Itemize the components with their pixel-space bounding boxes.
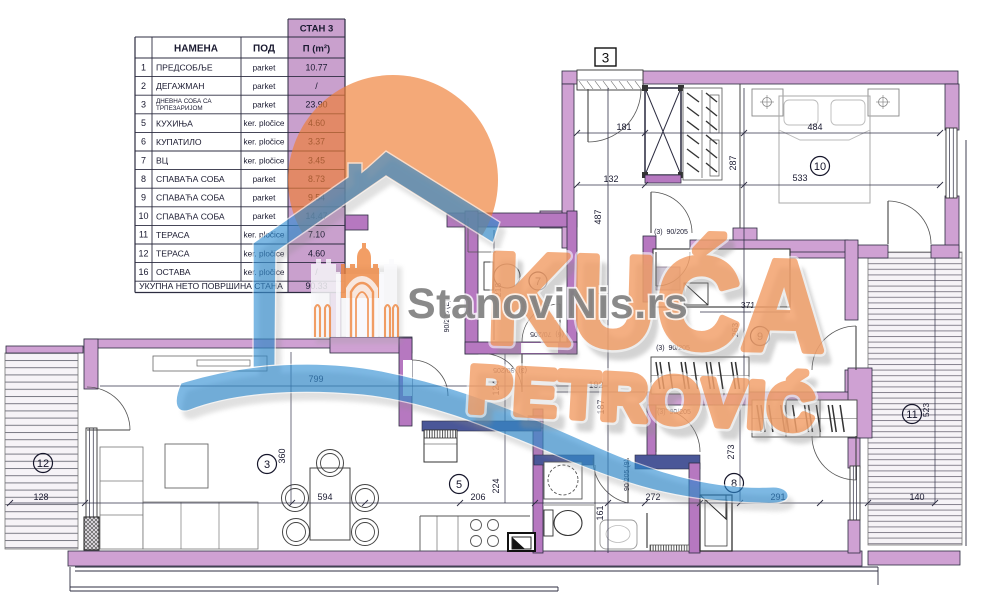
svg-text:287: 287 (728, 155, 738, 170)
svg-text:3: 3 (602, 51, 610, 66)
svg-text:11: 11 (139, 230, 148, 240)
svg-text:ПОД: ПОД (253, 44, 275, 55)
svg-text:НАМЕНА: НАМЕНА (174, 44, 218, 55)
svg-text:484: 484 (807, 122, 822, 132)
svg-text:parket: parket (253, 175, 276, 184)
svg-text:StanoviNis.rs: StanoviNis.rs (407, 280, 688, 328)
svg-text:П (m²): П (m²) (303, 44, 330, 55)
svg-text:360: 360 (277, 448, 287, 463)
svg-text:ОСТАВА: ОСТАВА (156, 267, 191, 277)
svg-text:СТАН 3: СТАН 3 (300, 24, 333, 35)
svg-text:7: 7 (141, 155, 146, 165)
svg-text:ТЕРАСА: ТЕРАСА (156, 249, 190, 259)
svg-text:8: 8 (141, 174, 146, 184)
svg-text:КУХИЊА: КУХИЊА (156, 118, 193, 128)
svg-text:128: 128 (33, 492, 48, 502)
svg-text:9: 9 (141, 193, 146, 203)
svg-text:parket: parket (253, 194, 276, 203)
svg-text:ДНЕВНА СОБА СА: ДНЕВНА СОБА СА (156, 98, 212, 105)
svg-text:ker. pločice: ker. pločice (244, 138, 285, 147)
svg-text:10: 10 (814, 161, 826, 173)
svg-text:1: 1 (141, 62, 146, 72)
svg-text:ker. pločice: ker. pločice (244, 119, 285, 128)
svg-text:224: 224 (491, 478, 501, 493)
svg-text:12: 12 (37, 458, 49, 470)
svg-text:181: 181 (616, 122, 631, 132)
svg-text:10: 10 (138, 211, 148, 221)
svg-text:132: 132 (603, 174, 618, 184)
svg-text:523: 523 (921, 403, 931, 417)
svg-text:parket: parket (253, 101, 276, 110)
svg-text:2: 2 (141, 81, 146, 91)
svg-text:parket: parket (253, 212, 276, 221)
svg-text:ТРПЕЗАРИЈОМ: ТРПЕЗАРИЈОМ (156, 105, 203, 112)
svg-text:140: 140 (909, 492, 924, 502)
svg-text:3: 3 (141, 100, 146, 110)
svg-text:3: 3 (264, 459, 270, 471)
svg-text:КУПАТИЛО: КУПАТИЛО (156, 137, 202, 147)
svg-text:5: 5 (141, 118, 146, 128)
svg-text:ДЕГАЖМАН: ДЕГАЖМАН (156, 81, 204, 91)
svg-text:206: 206 (470, 492, 485, 502)
svg-text:12: 12 (138, 248, 148, 258)
svg-text:ПРЕДСОБЉЕ: ПРЕДСОБЉЕ (156, 63, 213, 73)
svg-text:parket: parket (253, 82, 276, 91)
svg-text:ker. pločice: ker. pločice (244, 156, 285, 165)
svg-text:ВЦ: ВЦ (156, 156, 169, 166)
svg-text:10.77: 10.77 (305, 62, 327, 72)
svg-text:594: 594 (317, 492, 332, 502)
svg-text:5: 5 (456, 479, 462, 491)
svg-text:161: 161 (595, 505, 605, 520)
svg-text:6: 6 (141, 137, 146, 147)
svg-text:487: 487 (593, 209, 603, 224)
svg-text:parket: parket (253, 63, 276, 72)
svg-text:СПАВАЋА СОБА: СПАВАЋА СОБА (156, 193, 225, 203)
svg-text:СПАВАЋА СОБА: СПАВАЋА СОБА (156, 211, 225, 221)
svg-text:16: 16 (138, 267, 148, 277)
svg-text:ТЕРАСА: ТЕРАСА (156, 230, 190, 240)
svg-text:533: 533 (792, 173, 807, 183)
svg-text:СПАВАЋА СОБА: СПАВАЋА СОБА (156, 174, 225, 184)
svg-text:11: 11 (906, 409, 917, 421)
